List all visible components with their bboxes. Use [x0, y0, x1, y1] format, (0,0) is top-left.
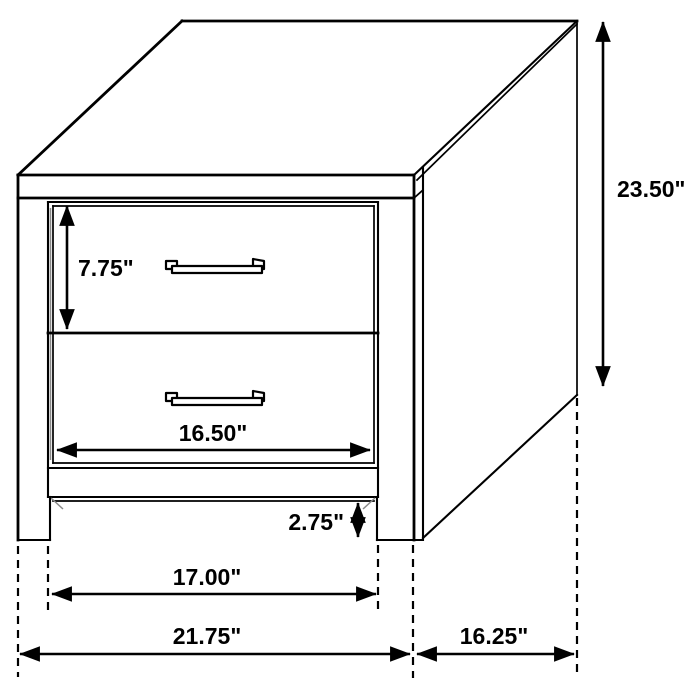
- leg-inner-width-label: 17.00": [173, 564, 241, 590]
- overall-height-label: 23.50": [617, 176, 685, 202]
- diagram-svg: 23.50" 7.75" 16.50" 2.75" 17.00" 21.75" …: [0, 0, 700, 700]
- drawer-width-label: 16.50": [179, 420, 247, 446]
- overall-width-label: 21.75": [173, 623, 241, 649]
- drawer-height-label: 7.75": [78, 255, 134, 281]
- handle-bar: [172, 266, 262, 273]
- overall-depth-label: 16.25": [460, 623, 528, 649]
- base-clearance-label: 2.75": [288, 509, 344, 535]
- handle-bar: [172, 398, 262, 405]
- nightstand-dimension-diagram: 23.50" 7.75" 16.50" 2.75" 17.00" 21.75" …: [0, 0, 700, 700]
